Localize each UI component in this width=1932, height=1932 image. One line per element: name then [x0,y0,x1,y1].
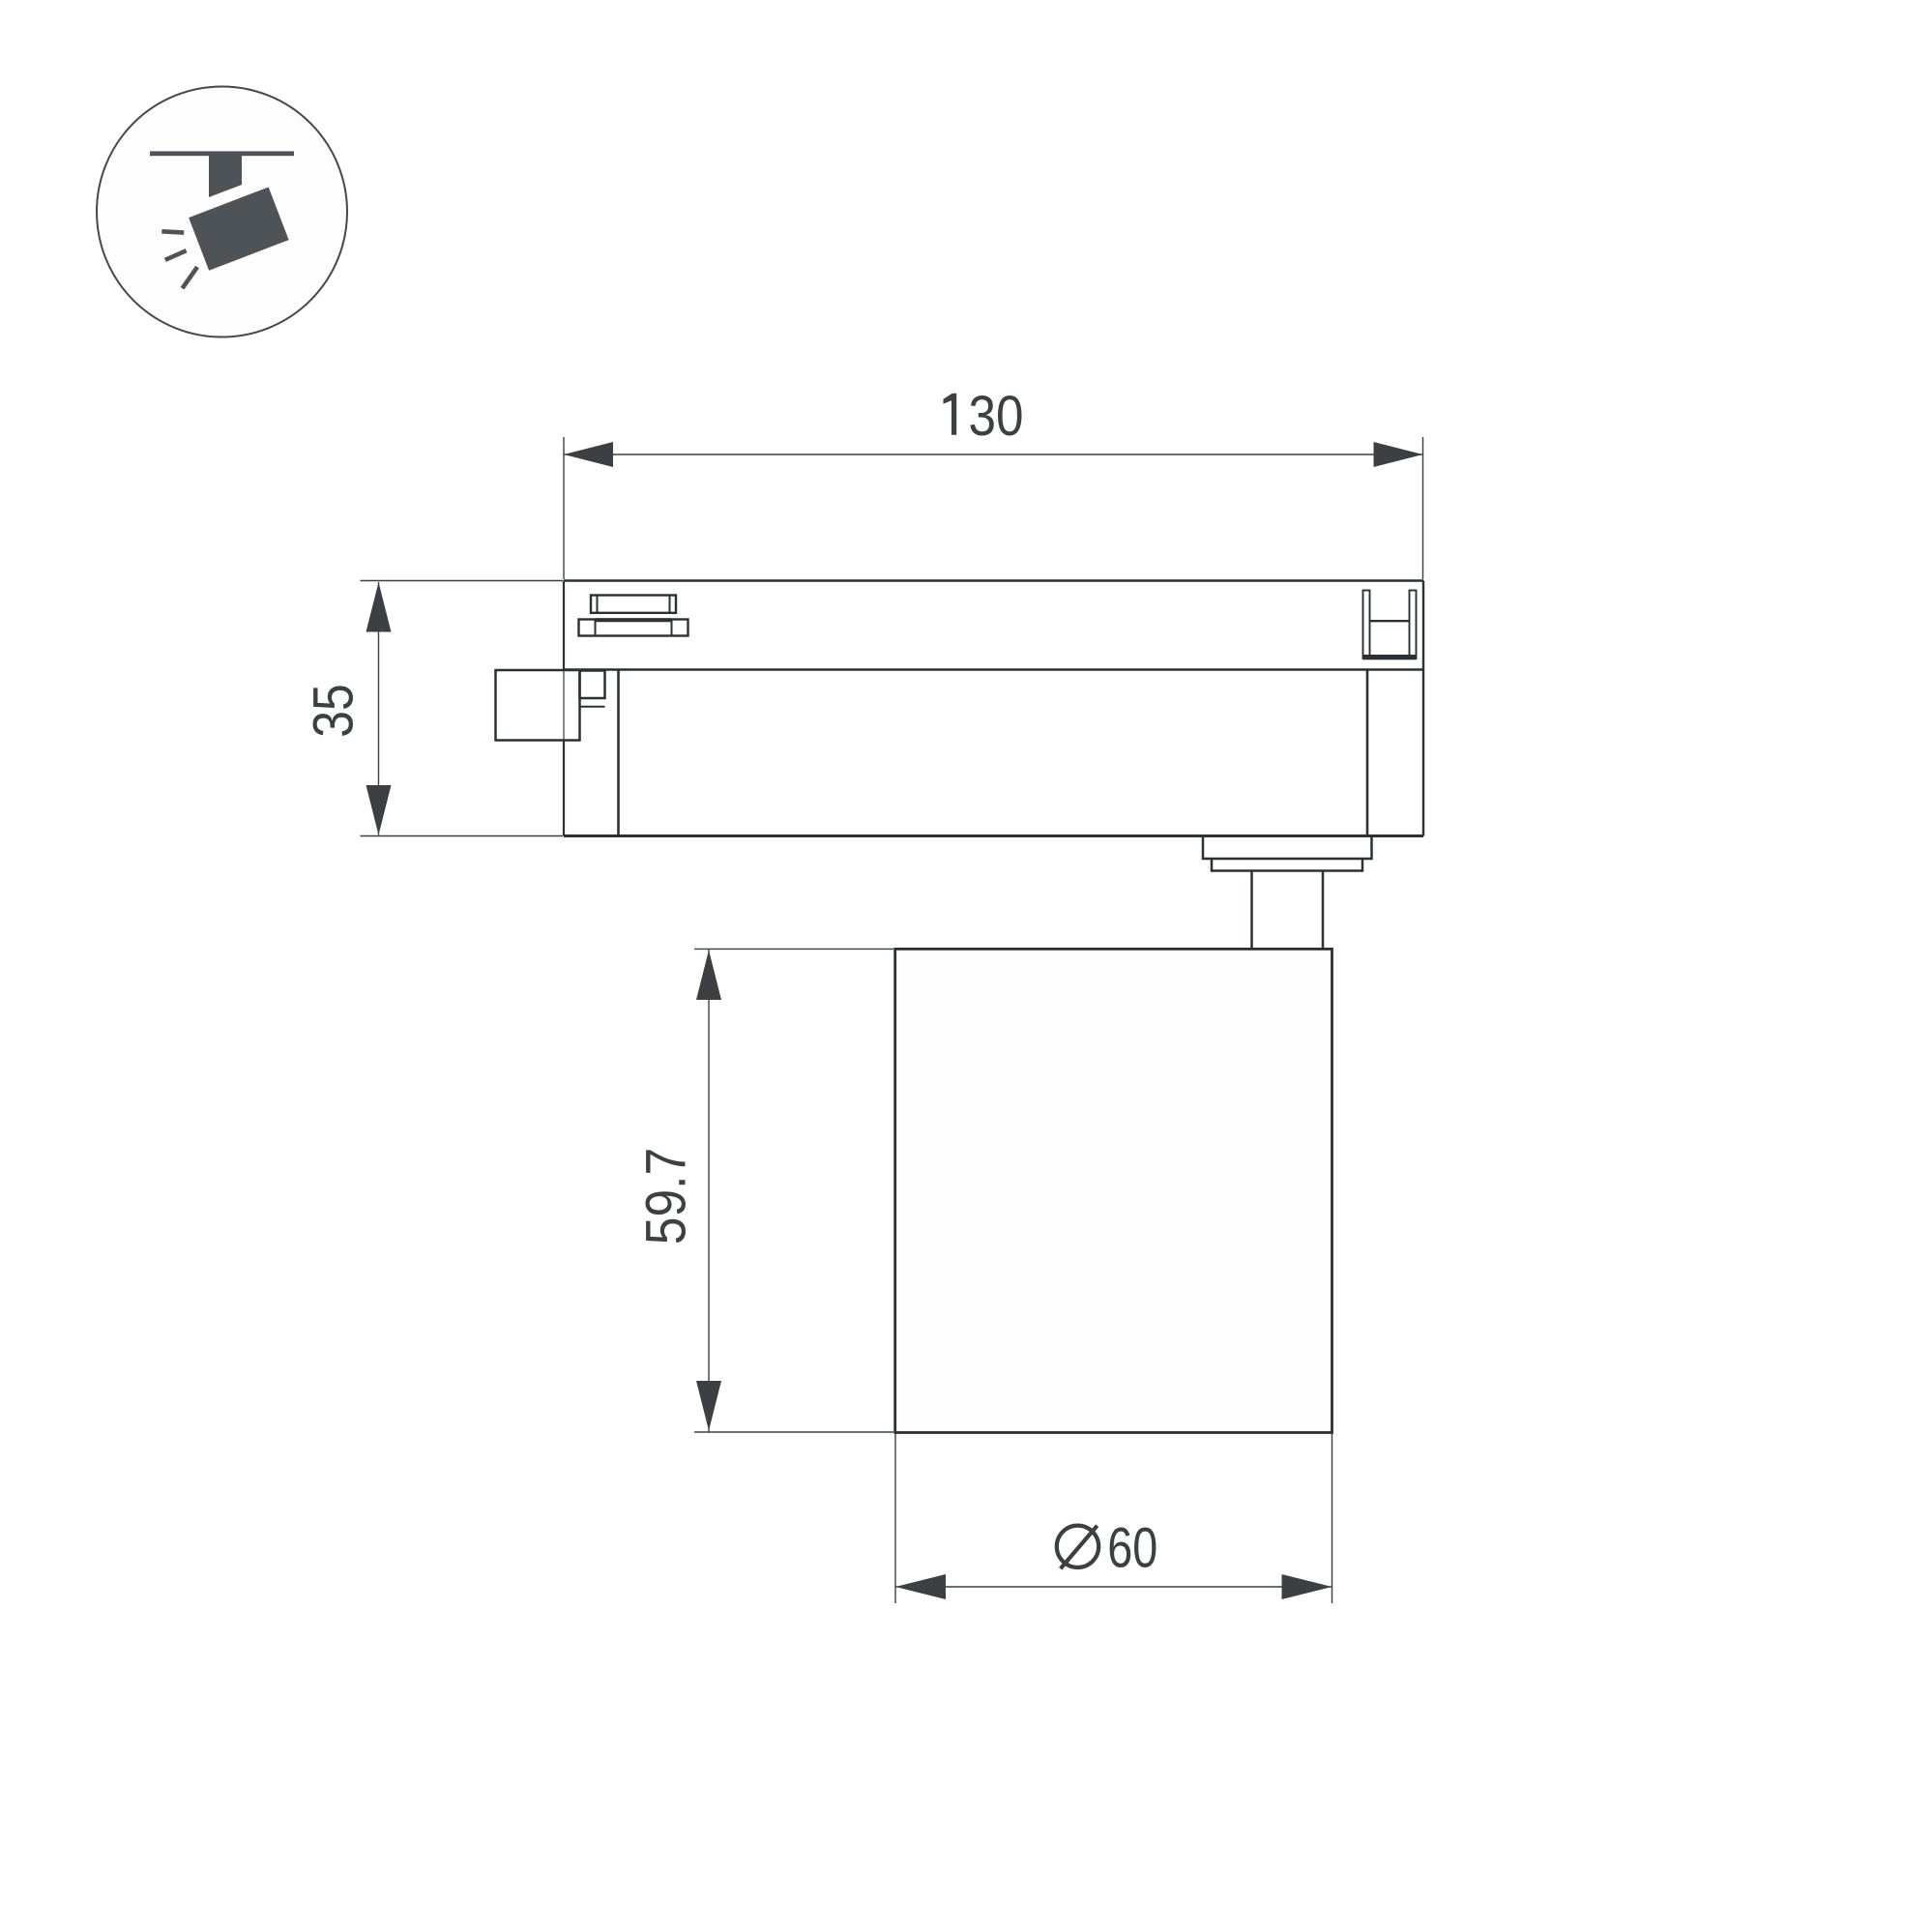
svg-text:30: 30 [969,385,1024,448]
svg-text:60: 60 [1107,1517,1157,1580]
svg-text:59.7: 59.7 [635,1148,698,1245]
svg-text:35: 35 [303,684,366,738]
